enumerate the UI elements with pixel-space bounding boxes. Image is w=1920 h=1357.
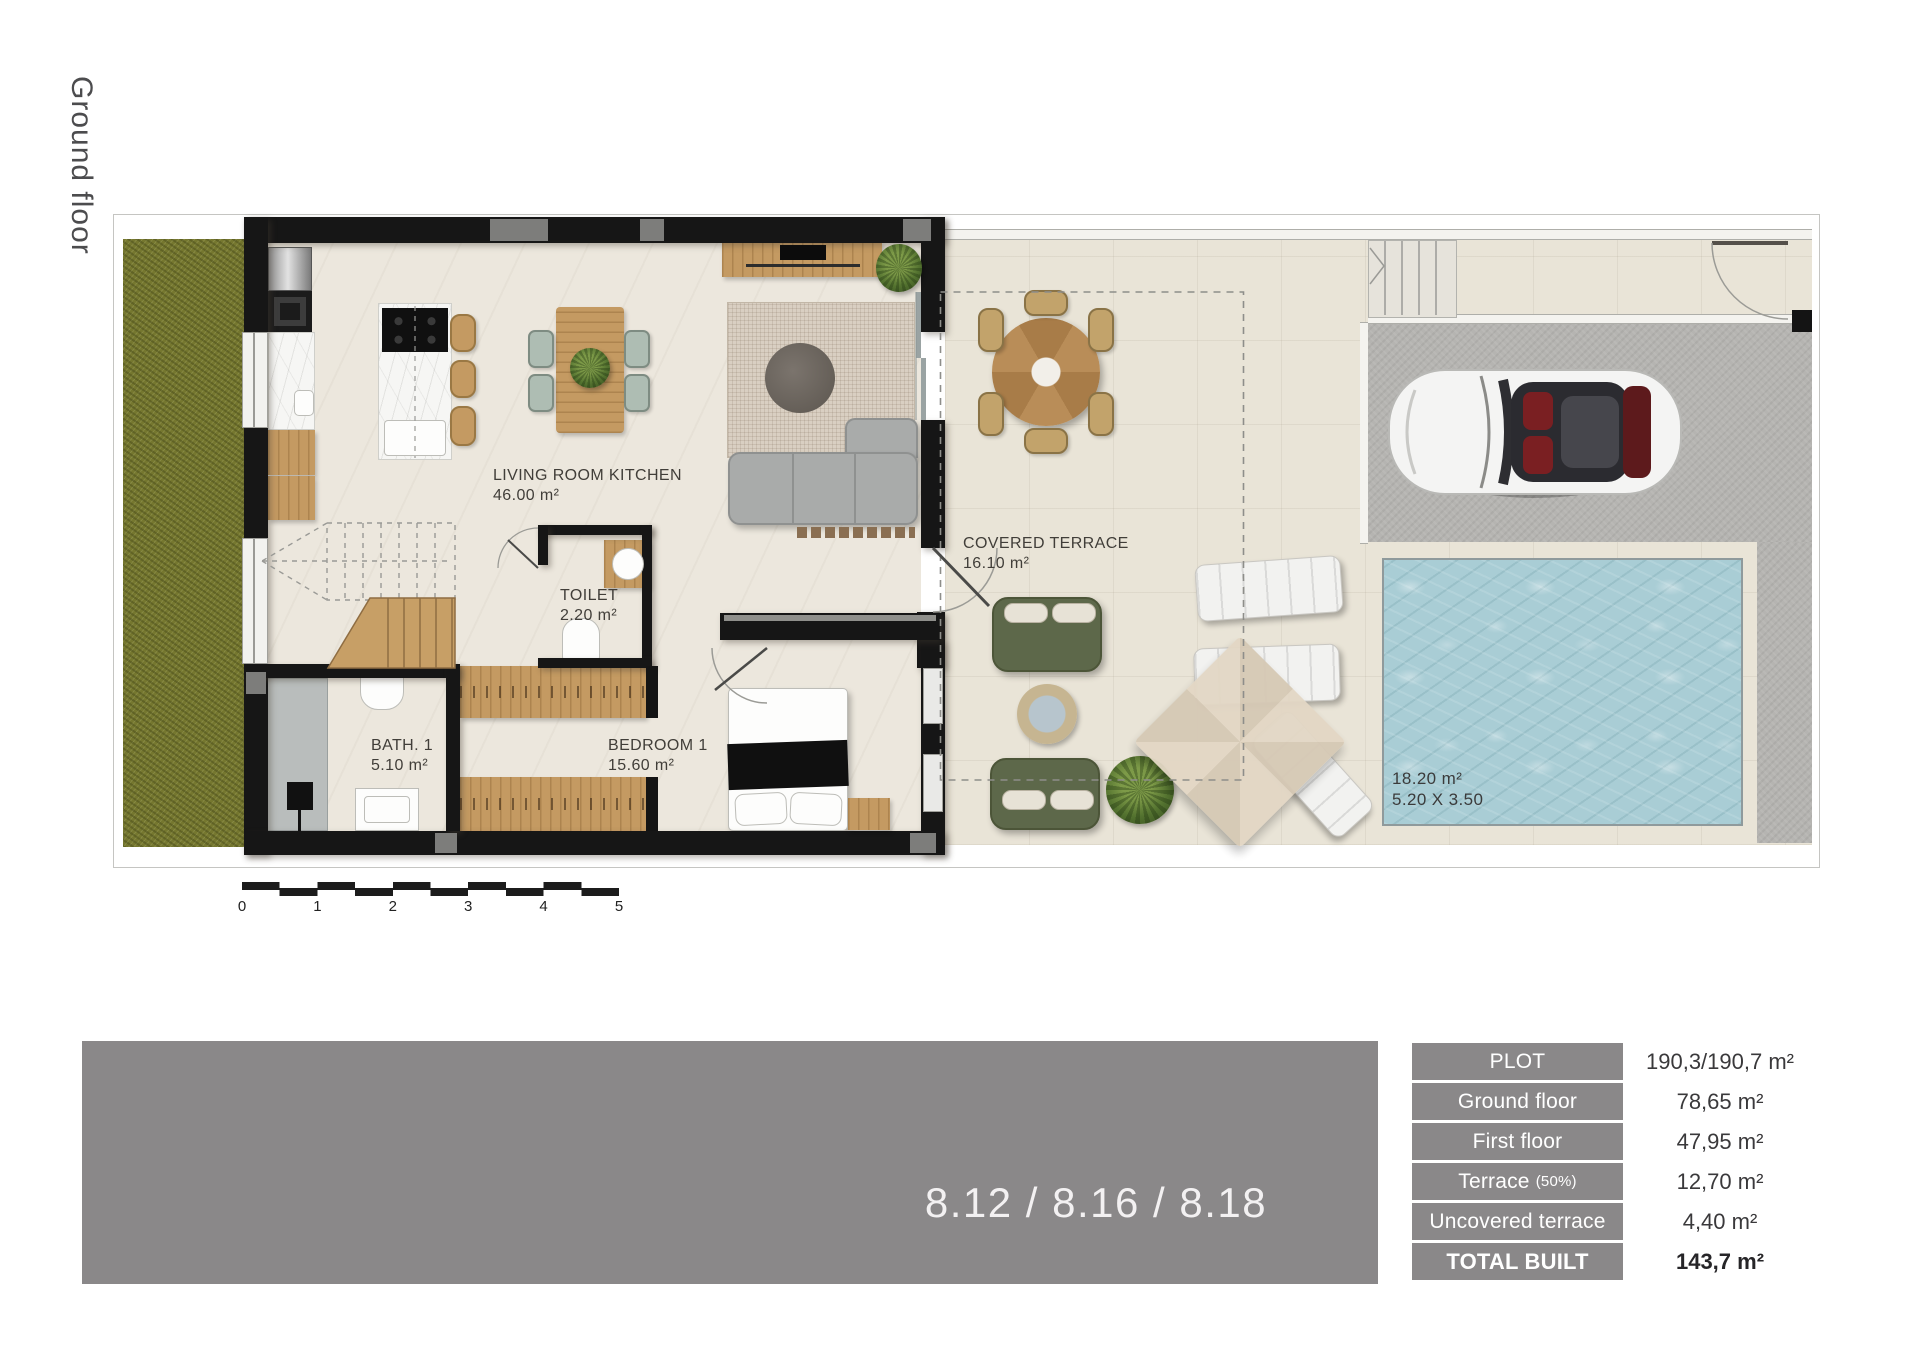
pool-area: 18.20 m² — [1392, 768, 1483, 789]
kitchen-cabinet — [268, 476, 315, 520]
dining-chair — [528, 374, 554, 412]
scale-bar-ticks: 0 1 2 3 4 5 — [242, 896, 619, 914]
wardrobe-hangers — [460, 686, 646, 698]
wall-toilet-south — [538, 658, 652, 668]
pillar — [435, 833, 457, 853]
outdoor-chair — [1088, 308, 1114, 352]
tv — [780, 245, 826, 260]
wall-toilet-east — [642, 525, 652, 668]
table-label-first-floor: First floor — [1412, 1123, 1623, 1160]
scale-tick: 0 — [238, 898, 246, 915]
room-name: TOILET — [560, 586, 618, 606]
bath-sink-basin — [364, 796, 410, 823]
sofa-cushion — [1050, 790, 1094, 810]
terrace-label: Terrace — [1458, 1170, 1529, 1194]
scale-tick: 4 — [539, 898, 547, 915]
pillar — [490, 219, 548, 241]
room-area: 5.10 m² — [371, 756, 433, 776]
room-name: LIVING ROOM KITCHEN — [493, 466, 682, 486]
table-value-first-floor: 47,95 m² — [1627, 1123, 1813, 1160]
sun-lounger — [1194, 555, 1344, 622]
label-bath-1: BATH. 1 5.10 m² — [371, 736, 433, 775]
bed-throw — [727, 740, 849, 790]
label-covered-terrace: COVERED TERRACE 16.10 m² — [963, 534, 1129, 573]
terrace-label-suffix: (50%) — [1536, 1173, 1577, 1190]
outdoor-chair — [1024, 428, 1068, 454]
sofa-cushion — [1004, 603, 1048, 623]
counter-sink — [294, 390, 314, 416]
driveway-left-wall — [1360, 322, 1368, 544]
sofa-cushion — [1002, 790, 1046, 810]
sofa-cushion — [1052, 603, 1096, 623]
table-value-terrace: 12,70 m² — [1627, 1163, 1813, 1200]
table-label-plot: PLOT — [1412, 1043, 1623, 1080]
fridge — [268, 247, 312, 291]
room-name: BEDROOM 1 — [608, 736, 708, 756]
outdoor-dining-table — [992, 318, 1100, 426]
island-sink — [384, 420, 446, 456]
label-pool: 18.20 m² 5.20 X 3.50 — [1392, 768, 1483, 810]
shower-head — [287, 782, 313, 810]
gate-post — [1792, 310, 1812, 332]
wall-south — [244, 831, 945, 855]
dining-chair — [624, 374, 650, 412]
shower-pole — [298, 810, 301, 831]
wall-sill-line — [724, 615, 936, 621]
room-name: BATH. 1 — [371, 736, 433, 756]
table-label-total-built: TOTAL BUILT — [1412, 1243, 1623, 1280]
driveway-side-strip — [1757, 542, 1812, 843]
wardrobe-end — [646, 666, 658, 718]
table-value-uncovered-terrace: 4,40 m² — [1627, 1203, 1813, 1240]
wall-north — [244, 217, 945, 243]
outdoor-chair — [1024, 290, 1068, 316]
dining-chair — [528, 330, 554, 368]
wardrobe-end — [646, 777, 658, 831]
bar-stool — [450, 360, 476, 398]
room-area: 16.10 m² — [963, 554, 1129, 574]
sofa — [728, 452, 918, 525]
room-name: COVERED TERRACE — [963, 534, 1129, 554]
garden-grass — [123, 239, 244, 847]
dining-chair — [624, 330, 650, 368]
pillar — [910, 833, 936, 853]
unit-numbers: 8.12 / 8.16 / 8.18 — [925, 1179, 1267, 1227]
soundbar — [746, 264, 860, 267]
floor-plan-page: { "page": { "floor_label": "Ground floor… — [0, 0, 1920, 1357]
oven — [268, 291, 312, 332]
bar-stool — [450, 314, 476, 352]
window-bedroom-2 — [923, 754, 943, 812]
table-value-plot: 190,3/190,7 m² — [1627, 1043, 1813, 1080]
room-area: 46.00 m² — [493, 486, 682, 506]
bed-bench — [848, 798, 890, 830]
area-summary-table: PLOT 190,3/190,7 m² Ground floor 78,65 m… — [1412, 1043, 1813, 1280]
outdoor-chair — [978, 308, 1004, 352]
window-bedroom-1 — [923, 668, 943, 724]
wall-east-mid — [921, 420, 945, 548]
window-west-stairs — [242, 538, 268, 664]
floor-title: Ground floor — [64, 76, 98, 255]
wall-toilet-west-stub — [538, 525, 548, 565]
outdoor-chair — [978, 392, 1004, 436]
kitchen-cabinet — [268, 430, 315, 475]
wall-bath-north — [244, 664, 460, 678]
table-value-total-built: 143,7 m² — [1627, 1243, 1813, 1280]
wall-toilet-north — [538, 525, 652, 535]
table-label-terrace: Terrace (50%) — [1412, 1163, 1623, 1200]
wall-bath-east — [446, 664, 460, 831]
bar-stool — [450, 406, 476, 446]
pillar — [903, 219, 931, 241]
decor-tile-row — [797, 527, 915, 538]
pillow — [789, 792, 843, 827]
wardrobe-hangers — [460, 798, 646, 810]
outdoor-side-table — [1017, 684, 1077, 744]
window-west-kitchen — [242, 332, 268, 428]
label-bedroom-1: BEDROOM 1 15.60 m² — [608, 736, 708, 775]
wall-west — [244, 217, 268, 855]
living-room-plant — [876, 244, 922, 292]
table-value-ground-floor: 78,65 m² — [1627, 1083, 1813, 1120]
pillar — [246, 672, 266, 694]
outdoor-chair — [1088, 392, 1114, 436]
round-rug — [765, 343, 835, 413]
label-living-room-kitchen: LIVING ROOM KITCHEN 46.00 m² — [493, 466, 682, 505]
pool-dimensions: 5.20 X 3.50 — [1392, 789, 1483, 810]
car — [1385, 356, 1685, 508]
room-area: 2.20 m² — [560, 606, 618, 626]
pillow — [734, 792, 788, 827]
table-label-ground-floor: Ground floor — [1412, 1083, 1623, 1120]
pillar — [640, 219, 664, 241]
cooktop — [382, 308, 448, 352]
unit-banner: 8.12 / 8.16 / 8.18 — [82, 1041, 1378, 1284]
exterior-stairs — [1368, 240, 1457, 318]
table-plant — [570, 348, 610, 388]
scale-bar: 0 1 2 3 4 5 — [242, 882, 619, 914]
scale-tick: 3 — [464, 898, 472, 915]
scale-tick: 5 — [615, 898, 623, 915]
terrace-top-wall — [945, 229, 1812, 240]
scale-tick: 1 — [313, 898, 321, 915]
label-toilet: TOILET 2.20 m² — [560, 586, 618, 625]
scale-tick: 2 — [389, 898, 397, 915]
toilet-basin — [612, 548, 644, 580]
table-label-uncovered-terrace: Uncovered terrace — [1412, 1203, 1623, 1240]
room-area: 15.60 m² — [608, 756, 708, 776]
